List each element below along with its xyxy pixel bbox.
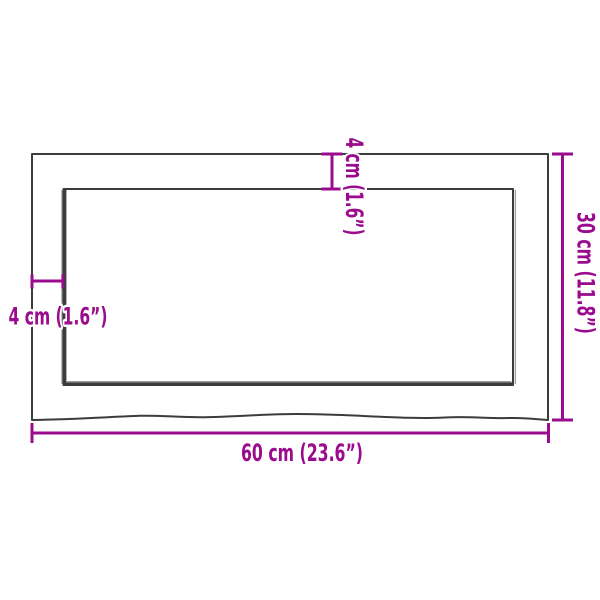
dimension-label-width: 60 cm (23.6”) (241, 439, 363, 467)
dimension-label-top-thickness: 4 cm (1.6”) (340, 138, 368, 236)
board-outline (32, 154, 548, 420)
dimension-label-left-thickness: 4 cm (1.6”) (9, 303, 108, 331)
dimension-label-height: 30 cm (11.8”) (572, 212, 600, 334)
dimension-diagram: 4 cm (1.6”) 4 cm (1.6”) 30 cm (11.8”) 60… (0, 0, 600, 600)
